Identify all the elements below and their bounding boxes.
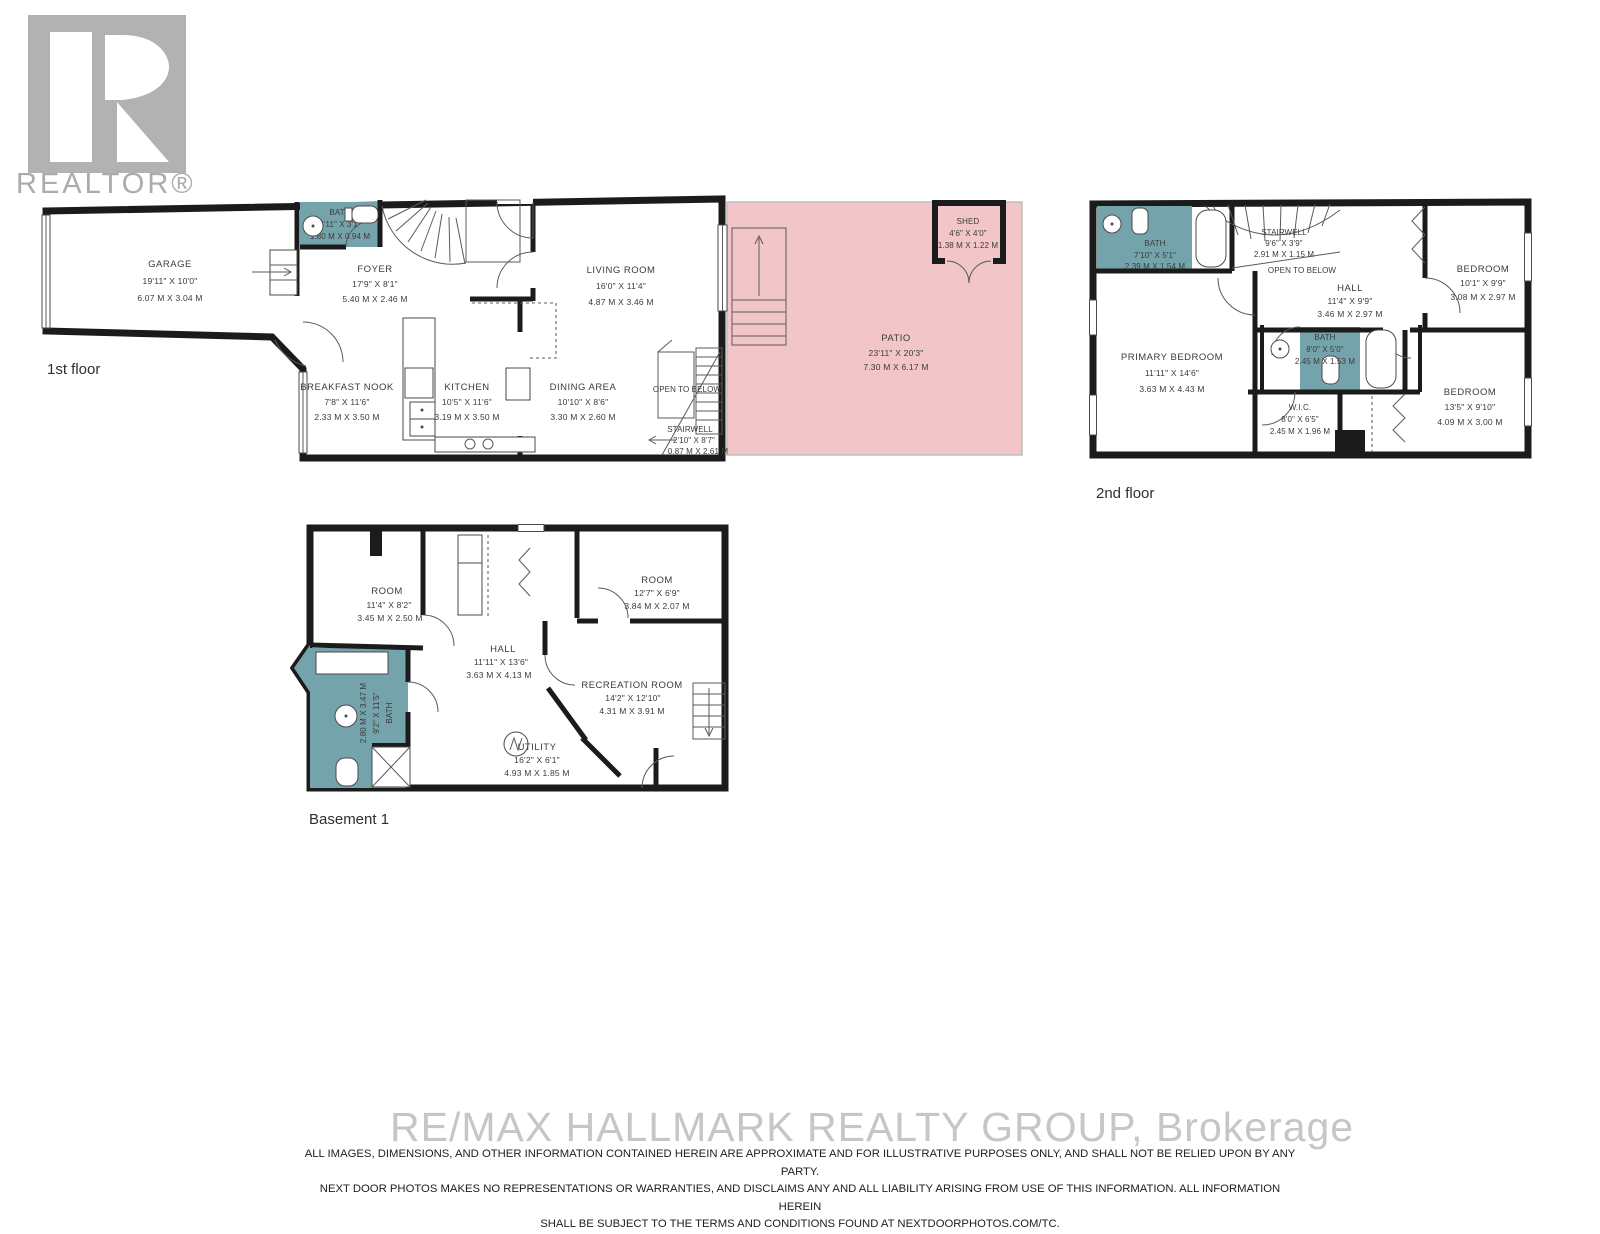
- broom-left-name: ROOM: [371, 586, 403, 597]
- bath-mid-m: 2.45 M X 1.53 M: [1295, 357, 1355, 366]
- logo-r-stem: [50, 32, 92, 162]
- bbath-name: BATH: [385, 702, 394, 723]
- hall2-m: 3.46 M X 2.97 M: [1317, 309, 1382, 319]
- stairwell-m: 0.87 M X 2.61 M: [668, 447, 728, 456]
- bedroom-bot-ft: 13'5" X 9'10": [1445, 402, 1496, 412]
- windows: [42, 195, 727, 453]
- shed-m: 1.38 M X 1.22 M: [938, 241, 998, 250]
- shed-name: SHED: [957, 217, 980, 226]
- caption-second-floor: 2nd floor: [1096, 485, 1154, 502]
- disclaimer-line-1: ALL IMAGES, DIMENSIONS, AND OTHER INFORM…: [300, 1146, 1300, 1181]
- wic-ft: 8'0" X 6'5": [1281, 415, 1318, 424]
- stairwell2-m: 2.91 M X 1.15 M: [1254, 250, 1314, 259]
- bhall-m: 3.63 M X 4.13 M: [466, 670, 531, 680]
- kitchen-m: 3.19 M X 3.50 M: [434, 412, 499, 422]
- bbath-ft: 9'2" X 11'5": [372, 692, 381, 733]
- disclaimer-text: ALL IMAGES, DIMENSIONS, AND OTHER INFORM…: [300, 1146, 1300, 1234]
- dining-name: DINING AREA: [550, 382, 617, 393]
- patio-ft: 23'11" X 20'3": [869, 348, 924, 358]
- room-label-breakfast: BREAKFAST NOOK 7'8" X 11'6" 2.33 M X 3.5…: [300, 382, 394, 422]
- wic-name: W.I.C.: [1289, 403, 1311, 412]
- basement-floor-plan: ROOM 11'4" X 8'2" 3.45 M X 2.50 M HALL 1…: [288, 514, 733, 796]
- foyer-curved-stairs: [382, 200, 520, 264]
- foyer-name: FOYER: [357, 264, 392, 275]
- realtor-logo: [20, 10, 190, 180]
- living-m: 4.87 M X 3.46 M: [588, 297, 653, 307]
- kitchen-name: KITCHEN: [444, 382, 489, 393]
- room-label-broom-right: ROOM 12'7" X 6'9" 3.84 M X 2.07 M: [624, 575, 689, 611]
- disclaimer-line-3: SHALL BE SUBJECT TO THE TERMS AND CONDIT…: [300, 1216, 1300, 1234]
- garage-m: 6.07 M X 3.04 M: [137, 293, 202, 303]
- broom-left-m: 3.45 M X 2.50 M: [357, 613, 422, 623]
- patio-area: [727, 202, 1022, 455]
- bath-top-m: 2.39 M X 1.54 M: [1125, 262, 1185, 271]
- living-ft: 16'0" X 11'4": [596, 281, 646, 291]
- windows: [518, 525, 544, 532]
- first-floor-outline: [46, 199, 722, 458]
- garage-stairs: [252, 250, 297, 295]
- utility-ft: 16'2" X 6'1": [514, 755, 560, 765]
- bath-mid-name: BATH: [1314, 333, 1335, 342]
- recreation-ft: 14'2" X 12'10": [605, 693, 661, 703]
- open-below-label: OPEN TO BELOW: [653, 385, 721, 394]
- stairwell2-name: STAIRWELL: [1261, 228, 1307, 237]
- room-label-broom-left: ROOM 11'4" X 8'2" 3.45 M X 2.50 M: [357, 586, 422, 623]
- bedroom-top-name: BEDROOM: [1457, 264, 1510, 275]
- bedroom-top-ft: 10'1" X 9'9": [1460, 278, 1506, 288]
- breakfast-name: BREAKFAST NOOK: [300, 382, 394, 393]
- room-label-garage: GARAGE 19'11" X 10'0" 6.07 M X 3.04 M: [137, 259, 202, 303]
- broom-right-name: ROOM: [641, 575, 673, 586]
- foyer-ft: 17'9" X 8'1": [352, 279, 398, 289]
- bath-top-name: BATH: [1144, 239, 1165, 248]
- kitchen-fixtures: [403, 303, 556, 452]
- shed-ft: 4'6" X 4'0": [949, 229, 986, 238]
- bbath-m: 2.80 M X 3.47 M: [359, 683, 368, 743]
- caption-basement: Basement 1: [309, 811, 389, 828]
- basement-stairs: [693, 683, 725, 739]
- garage-name: GARAGE: [148, 259, 192, 270]
- recreation-name: RECREATION ROOM: [581, 680, 682, 691]
- room-label-kitchen: KITCHEN 10'5" X 11'6" 3.19 M X 3.50 M: [434, 382, 499, 422]
- disclaimer-line-2: NEXT DOOR PHOTOS MAKES NO REPRESENTATION…: [300, 1181, 1300, 1216]
- hall2-ft: 11'4" X 9'9": [1327, 296, 1372, 306]
- room-label-primary: PRIMARY BEDROOM 11'11" X 14'6" 3.63 M X …: [1121, 352, 1223, 394]
- bath-top-ft: 7'10" X 5'1": [1134, 251, 1176, 260]
- primary-ft: 11'11" X 14'6": [1145, 368, 1199, 378]
- bhall-ft: 11'11" X 13'6": [474, 657, 528, 667]
- primary-m: 3.63 M X 4.43 M: [1139, 384, 1204, 394]
- room-label-wic: W.I.C. 8'0" X 6'5" 2.45 M X 1.96 M: [1270, 403, 1330, 436]
- first-floor-plan: GARAGE 19'11" X 10'0" 6.07 M X 3.04 M BA…: [35, 190, 1035, 470]
- hall2-name: HALL: [1337, 283, 1363, 294]
- utility-name: UTILITY: [518, 742, 557, 753]
- realtor-r-icon: [20, 10, 190, 175]
- room-label-hall2: HALL 11'4" X 9'9" 3.46 M X 2.97 M: [1317, 283, 1382, 319]
- closet-chevrons: [1393, 207, 1425, 442]
- room-label-bedroom-top: BEDROOM 10'1" X 9'9" 3.08 M X 2.97 M: [1450, 264, 1515, 302]
- breakfast-m: 2.33 M X 3.50 M: [314, 412, 379, 422]
- primary-name: PRIMARY BEDROOM: [1121, 352, 1223, 363]
- broom-left-ft: 11'4" X 8'2": [366, 600, 411, 610]
- stairwell-ft: 2'10" X 8'7": [673, 436, 715, 445]
- brokerage-watermark: RE/MAX HALLMARK REALTY GROUP, Brokerage: [390, 1104, 1190, 1151]
- room-label-recreation: RECREATION ROOM 14'2" X 12'10" 4.31 M X …: [581, 680, 682, 716]
- utility-m: 4.93 M X 1.85 M: [504, 768, 569, 778]
- bedroom-top-m: 3.08 M X 2.97 M: [1450, 292, 1515, 302]
- bedroom-bot-m: 4.09 M X 3.00 M: [1437, 417, 1502, 427]
- bedroom-bot-name: BEDROOM: [1444, 387, 1497, 398]
- room-label-dining: DINING AREA 10'10" X 8'6" 3.30 M X 2.60 …: [550, 382, 617, 422]
- open-below2-label: OPEN TO BELOW: [1268, 266, 1336, 275]
- bhall-name: HALL: [490, 644, 516, 655]
- second-floor-plan: BATH 7'10" X 5'1" 2.39 M X 1.54 M STAIRW…: [1085, 193, 1535, 465]
- patio-m: 7.30 M X 6.17 M: [863, 362, 928, 372]
- wic-m: 2.45 M X 1.96 M: [1270, 427, 1330, 436]
- patio-name: PATIO: [881, 333, 911, 344]
- bath-mid-ft: 8'0" X 5'0": [1306, 345, 1343, 354]
- stairwell-name: STAIRWELL: [667, 425, 713, 434]
- caption-first-floor: 1st floor: [47, 361, 100, 378]
- garage-ft: 19'11" X 10'0": [143, 276, 198, 286]
- room-label-bhall: HALL 11'11" X 13'6" 3.63 M X 4.13 M: [466, 644, 531, 680]
- broom-right-ft: 12'7" X 6'9": [634, 588, 680, 598]
- stairwell2-ft: 9'6" X 3'9": [1265, 239, 1302, 248]
- breakfast-ft: 7'8" X 11'6": [324, 397, 369, 407]
- living-name: LIVING ROOM: [587, 265, 656, 276]
- room-label-stairwell2: STAIRWELL 9'6" X 3'9" 2.91 M X 1.15 M: [1254, 228, 1314, 259]
- recreation-m: 4.31 M X 3.91 M: [599, 706, 664, 716]
- hall-fixtures: [458, 535, 530, 618]
- foyer-m: 5.40 M X 2.46 M: [342, 294, 407, 304]
- room-label-living: LIVING ROOM 16'0" X 11'4" 4.87 M X 3.46 …: [587, 265, 656, 307]
- room-label-bedroom-bot: BEDROOM 13'5" X 9'10" 4.09 M X 3.00 M: [1437, 387, 1502, 427]
- room-label-foyer: FOYER 17'9" X 8'1" 5.40 M X 2.46 M: [342, 264, 407, 304]
- kitchen-ft: 10'5" X 11'6": [442, 397, 492, 407]
- dining-m: 3.30 M X 2.60 M: [550, 412, 615, 422]
- broom-right-m: 3.84 M X 2.07 M: [624, 601, 689, 611]
- dining-ft: 10'10" X 8'6": [558, 397, 609, 407]
